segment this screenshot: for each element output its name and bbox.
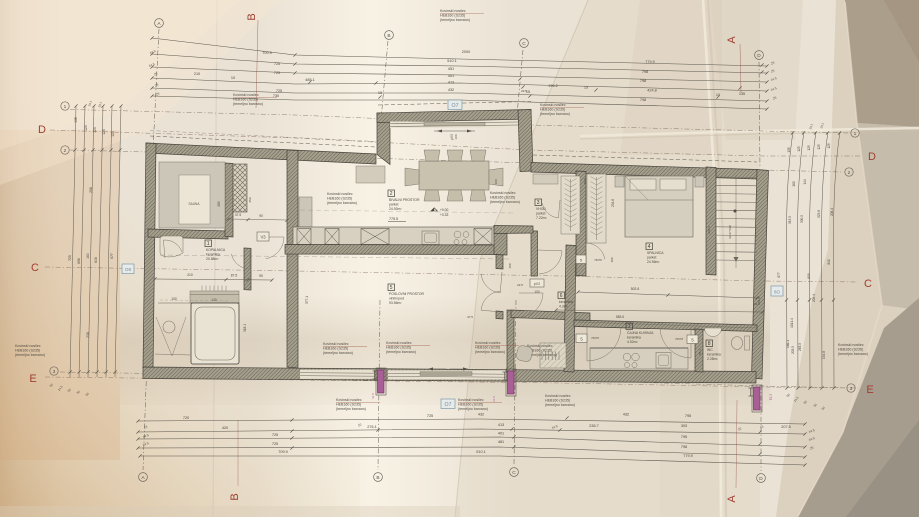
svg-text:725: 725 [276,89,282,93]
svg-text:HEB160 (S235): HEB160 (S235) [440,14,465,18]
svg-text:810: 810 [827,259,831,265]
svg-text:Kovinski nosilec: Kovinski nosilec [838,343,864,347]
svg-text:485.1: 485.1 [305,78,315,82]
svg-text:798: 798 [640,98,646,102]
svg-text:Kovinski nosilec: Kovinski nosilec [15,344,41,348]
svg-text:90: 90 [259,274,263,278]
svg-text:22.5: 22.5 [517,283,523,287]
svg-text:725: 725 [427,414,433,418]
svg-text:236.7: 236.7 [589,424,599,428]
svg-text:125: 125 [827,143,831,149]
svg-text:2: 2 [390,191,393,197]
svg-text:795: 795 [685,414,691,418]
svg-text:725: 725 [272,433,278,437]
svg-text:795: 795 [681,435,687,439]
svg-text:234.6: 234.6 [707,226,711,234]
svg-text:KOPALNICA: KOPALNICA [206,248,226,252]
svg-text:420: 420 [222,426,228,430]
svg-text:Kovinski nosilec: Kovinski nosilec [386,341,412,345]
svg-text:parket: parket [647,255,656,259]
svg-text:6: 6 [560,293,563,299]
svg-text:677: 677 [777,272,781,278]
svg-text:100: 100 [454,134,458,139]
svg-text:+0.00: +0.00 [440,208,449,212]
svg-text:401: 401 [498,432,504,436]
svg-text:16x17.5/28: 16x17.5/28 [728,225,732,239]
svg-text:90: 90 [259,214,263,218]
svg-text:401: 401 [448,74,454,78]
svg-text:160: 160 [86,253,90,259]
svg-text:Kovinski nosilec: Kovinski nosilec [527,344,553,348]
svg-text:413: 413 [448,81,454,85]
svg-text:180: 180 [610,257,614,262]
svg-text:10: 10 [716,93,720,97]
svg-text:7.22m²: 7.22m² [536,216,547,220]
svg-text:1: 1 [207,241,210,247]
svg-text:276.1: 276.1 [367,425,377,429]
svg-text:210: 210 [194,72,200,76]
svg-text:100: 100 [508,263,512,268]
svg-text:A: A [726,36,738,44]
svg-text:82.8: 82.8 [583,178,587,184]
svg-text:76078: 76078 [594,258,602,262]
svg-text:263.5: 263.5 [798,343,802,351]
svg-text:100: 100 [534,290,540,294]
svg-text:160: 160 [494,179,498,184]
svg-text:Kovinski nosilec: Kovinski nosilec [490,191,516,195]
svg-text:2: 2 [848,170,851,176]
svg-text:2000: 2000 [462,50,470,54]
svg-text:keramika: keramika [707,352,721,356]
svg-text:B: B [246,13,258,20]
svg-text:8O: 8O [774,290,781,295]
svg-text:O7: O7 [445,402,452,408]
svg-text:583.6: 583.6 [616,315,624,319]
svg-text:Kovinski nosilec: Kovinski nosilec [458,398,484,402]
svg-text:Kovinski nosilec: Kovinski nosilec [327,192,353,196]
svg-text:(temeljno barvano): (temeljno barvano) [336,407,366,411]
svg-text:259: 259 [248,197,252,202]
svg-text:(temeljno barvano): (temeljno barvano) [440,18,470,22]
svg-text:15: 15 [584,86,588,90]
svg-text:HEB160 (S235): HEB160 (S235) [475,346,500,350]
svg-text:205.4: 205.4 [812,294,816,302]
svg-text:4.52m²: 4.52m² [627,340,638,344]
svg-text:Kovinski nosilec: Kovinski nosilec [475,341,501,345]
svg-text:E: E [866,384,873,396]
svg-text:481: 481 [498,440,504,444]
svg-text:(temeljno barvano): (temeljno barvano) [323,351,353,355]
svg-text:(temeljno barvano): (temeljno barvano) [386,350,416,354]
svg-text:keramika: keramika [559,300,573,304]
svg-text:D: D [759,476,763,482]
svg-text:76078: 76078 [591,336,599,340]
svg-text:725: 725 [272,442,278,446]
svg-text:keramika: keramika [627,335,641,339]
svg-text:47.5: 47.5 [467,315,473,319]
svg-text:Kovinski nosilec: Kovinski nosilec [336,398,362,402]
svg-text:779.9: 779.9 [683,454,693,458]
svg-text:HEB160 (S235): HEB160 (S235) [490,196,515,200]
svg-text:B: B [229,493,241,500]
svg-text:vinilni pod: vinilni pod [389,296,404,300]
svg-text:207.5: 207.5 [781,425,791,429]
svg-text:POSLOVNI PROSTOR: POSLOVNI PROSTOR [389,292,425,296]
svg-text:(temeljno barvano): (temeljno barvano) [540,112,570,116]
svg-text:B: B [376,475,379,481]
svg-text:HEB160 (S235): HEB160 (S235) [540,108,565,112]
svg-text:7: 7 [628,324,631,330]
svg-text:parket: parket [389,202,398,206]
svg-text:125: 125 [797,146,801,152]
svg-text:144: 144 [803,179,807,185]
svg-text:269: 269 [217,201,221,207]
svg-text:725: 725 [274,62,280,66]
svg-text:234.6: 234.6 [611,199,615,207]
svg-text:D: D [868,151,876,163]
svg-text:432: 432 [478,413,484,417]
svg-text:HEB160 (S235): HEB160 (S235) [458,403,483,407]
svg-text:Kovinski nosilec: Kovinski nosilec [233,93,259,97]
svg-text:HEB160 (S235): HEB160 (S235) [386,346,411,350]
svg-text:303: 303 [681,424,687,428]
svg-text:O7: O7 [452,103,459,109]
svg-text:2: 2 [64,148,67,154]
svg-text:135: 135 [74,117,78,123]
svg-text:VHOD: VHOD [536,207,546,211]
svg-text:696: 696 [77,258,81,264]
svg-text:1: 1 [64,104,67,110]
svg-text:D: D [757,53,761,59]
svg-text:313.5: 313.5 [788,216,792,224]
svg-text:775.5: 775.5 [389,217,398,221]
svg-text:210: 210 [187,273,193,277]
svg-text:(temeljno barvano): (temeljno barvano) [233,102,263,106]
svg-text:20.88m²: 20.88m² [206,257,219,261]
svg-text:135: 135 [787,147,791,153]
svg-text:22.5: 22.5 [521,89,527,93]
svg-text:C: C [31,262,39,274]
svg-text:608: 608 [94,257,98,263]
svg-text:61.5: 61.5 [492,396,496,402]
svg-text:258: 258 [89,187,93,193]
svg-text:Kovinski nosilec: Kovinski nosilec [540,103,566,107]
svg-text:61.5: 61.5 [371,393,375,399]
svg-text:725: 725 [274,71,280,75]
svg-text:2.28m²: 2.28m² [707,357,718,361]
svg-text:93.56m²: 93.56m² [389,301,402,305]
svg-text:238: 238 [86,332,90,338]
svg-text:798: 798 [681,445,687,449]
svg-text:C: C [522,41,526,47]
svg-text:125: 125 [807,145,811,151]
svg-text:413: 413 [498,423,504,427]
svg-text:4: 4 [648,244,651,250]
svg-text:85.1: 85.1 [698,349,702,355]
svg-text:318.1: 318.1 [243,324,247,332]
svg-text:15: 15 [378,91,382,95]
svg-text:709.9: 709.9 [278,450,288,454]
svg-text:160: 160 [792,181,796,187]
svg-text:330.5: 330.5 [800,215,804,223]
svg-text:432: 432 [448,88,454,92]
svg-text:76078: 76078 [675,337,683,341]
svg-text:87.5: 87.5 [231,274,238,278]
svg-text:(temeljno barvano): (temeljno barvano) [327,201,357,205]
svg-text:1014.4: 1014.4 [790,318,794,328]
svg-text:720: 720 [183,416,189,420]
svg-text:WC: WC [707,348,713,352]
svg-text:47.5: 47.5 [235,213,241,217]
svg-text:8: 8 [708,341,711,347]
svg-text:699: 699 [807,273,811,279]
svg-text:E1.5: E1.5 [769,393,773,400]
svg-text:166.1: 166.1 [786,340,790,348]
svg-text:725: 725 [68,255,72,261]
svg-text:196.2: 196.2 [548,84,558,88]
svg-text:323.8: 323.8 [817,210,821,218]
svg-text:SPALNICA: SPALNICA [647,251,664,255]
svg-text:798: 798 [640,79,646,83]
svg-text:24.96m²: 24.96m² [647,260,660,264]
svg-text:HEB160 (S235): HEB160 (S235) [327,197,352,201]
svg-text:3: 3 [850,386,853,392]
svg-text:194.8: 194.8 [822,351,826,359]
svg-text:432: 432 [623,413,629,417]
svg-text:pV2: pV2 [534,282,540,286]
svg-text:Kovinski nosilec: Kovinski nosilec [440,9,466,13]
svg-text:709.9: 709.9 [262,51,272,55]
svg-text:4.3m²: 4.3m² [559,304,569,308]
svg-text:HEB160 (S235): HEB160 (S235) [838,348,863,352]
svg-text:140: 140 [211,298,217,302]
svg-text:125: 125 [93,127,97,133]
svg-text:ČAJNA KUHINJA: ČAJNA KUHINJA [627,330,654,335]
svg-text:510.1: 510.1 [447,59,457,63]
svg-text:(temeljno barvano): (temeljno barvano) [838,352,868,356]
svg-text:A: A [726,495,738,503]
svg-text:HEB160 (S235): HEB160 (S235) [233,98,258,102]
svg-text:3: 3 [537,200,540,206]
svg-text:O8: O8 [125,267,132,272]
svg-text:B: B [387,33,390,39]
svg-text:10: 10 [231,76,235,80]
svg-text:E: E [29,373,36,385]
svg-text:779.9: 779.9 [645,60,655,64]
svg-text:81.8: 81.8 [757,297,761,303]
svg-text:V3: V3 [260,235,266,240]
svg-text:125: 125 [817,144,821,150]
svg-text:Kovinski nosilec: Kovinski nosilec [545,394,571,398]
svg-text:377.1: 377.1 [305,296,309,304]
svg-text:+3.33: +3.33 [440,213,449,217]
svg-text:HEB160 (S235): HEB160 (S235) [545,399,570,403]
svg-text:BIVALNI PROSTOR: BIVALNI PROSTOR [389,198,420,202]
svg-text:24.92m²: 24.92m² [389,207,402,211]
svg-text:798: 798 [642,70,648,74]
svg-text:C: C [864,278,872,290]
svg-text:Kovinski nosilec: Kovinski nosilec [323,342,349,346]
svg-text:125: 125 [84,125,88,131]
svg-text:HEB160 (S235): HEB160 (S235) [323,347,348,351]
svg-text:677: 677 [110,253,114,259]
svg-text:HEB160 (S235): HEB160 (S235) [15,349,40,353]
svg-text:451: 451 [448,67,454,71]
svg-text:(temeljno barvano): (temeljno barvano) [545,403,575,407]
svg-text:SAUNA: SAUNA [189,202,201,206]
svg-text:135: 135 [739,92,745,96]
svg-text:510.1: 510.1 [476,450,486,454]
svg-text:(temeljno barvano): (temeljno barvano) [15,353,45,357]
svg-text:5: 5 [390,285,393,291]
svg-text:D: D [38,124,46,136]
svg-text:1: 1 [854,131,857,137]
svg-text:206.4: 206.4 [830,208,834,216]
svg-text:(temeljno barvano): (temeljno barvano) [458,407,488,411]
svg-text:3: 3 [53,369,56,375]
svg-text:502.6: 502.6 [631,287,640,291]
svg-text:424.8: 424.8 [647,89,657,93]
svg-text:C: C [512,470,516,476]
svg-text:parket: parket [536,211,545,215]
svg-text:203.5: 203.5 [791,346,795,354]
svg-text:(temeljno barvano): (temeljno barvano) [475,350,505,354]
svg-text:HEB160 (S235): HEB160 (S235) [336,403,361,407]
svg-text:(temeljno barvano): (temeljno barvano) [490,200,520,204]
